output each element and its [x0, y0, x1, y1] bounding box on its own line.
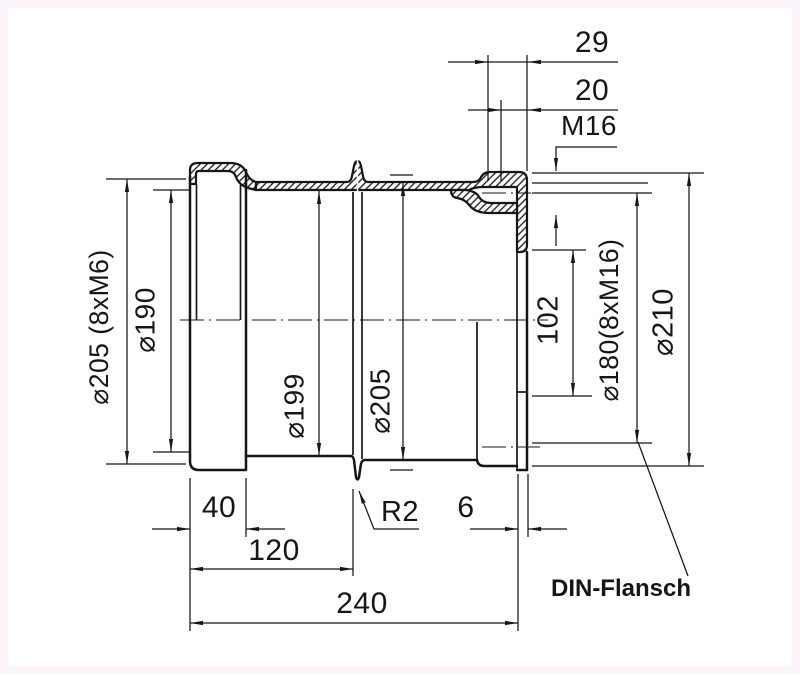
dim-20-label: 20 — [575, 74, 609, 107]
dim-199-label: ⌀199 — [278, 373, 309, 439]
dim-102-label: 102 — [533, 295, 565, 345]
dim-29-label: 29 — [575, 26, 609, 59]
dim-120-label: 120 — [248, 534, 300, 567]
dim-6-label: 6 — [457, 491, 474, 524]
dim-240-label: 240 — [336, 587, 388, 620]
dim-bolt-circle-right-label: ⌀180(8xM16) — [594, 239, 624, 402]
dim-205-label: ⌀205 — [364, 368, 395, 434]
dim-40-label: 40 — [202, 491, 236, 524]
technical-drawing: ⌀205 (8xM6) ⌀190 ⌀199 ⌀205 102 ⌀180(8xM1… — [0, 0, 800, 674]
dim-210-label: ⌀210 — [648, 288, 680, 356]
radius-r2-label: R2 — [381, 496, 419, 528]
din-flansch-label: DIN-Flansch — [551, 575, 691, 602]
dim-bolt-circle-left-label: ⌀205 (8xM6) — [84, 249, 114, 404]
thread-m16-label: M16 — [561, 110, 617, 141]
dim-190-label: ⌀190 — [129, 287, 160, 353]
